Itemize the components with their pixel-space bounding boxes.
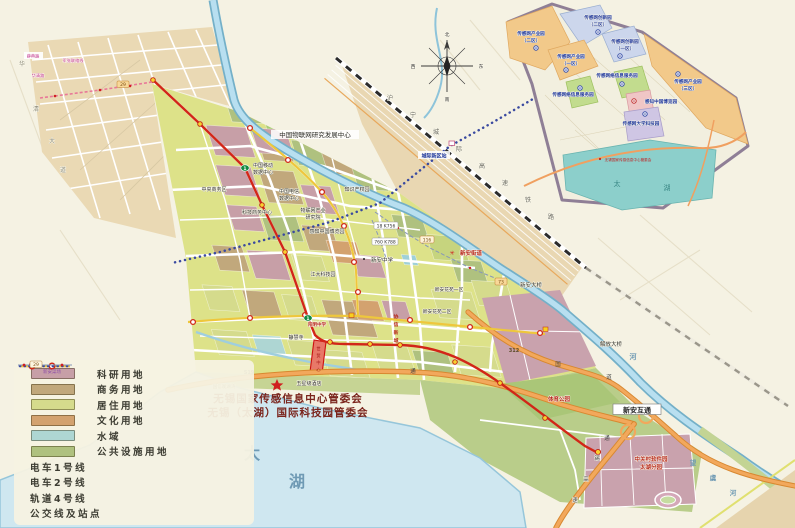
svg-text:湖: 湖 [664,183,671,192]
bus-sample-icon: 29 新安菜场 [16,360,74,374]
svg-text:贸: 贸 [316,352,320,359]
svg-text:城: 城 [433,129,439,136]
svg-text:速: 速 [502,179,508,187]
inset-hq-dot [599,158,601,160]
legend-label: 商务用地 [97,382,145,396]
legend-bus-badge: 29 [33,362,39,368]
compass-south: 南 [445,96,450,103]
label-pink-line-1: 薛典路 [27,53,40,60]
svg-text:（二区）: （二区） [589,21,607,28]
svg-text:传感网大学科技园: 传感网大学科技园 [622,120,660,127]
g312-badge: 312 [509,348,520,354]
svg-text:传感网产业园: 传感网产业园 [516,30,545,37]
svg-text:太: 太 [614,179,621,188]
svg-text:路: 路 [548,213,555,221]
legend-label: 轨道4号线 [30,491,87,505]
svg-text:中: 中 [316,359,320,366]
legend-label: 电车2号线 [30,475,87,489]
svg-text:（三区）: （三区） [679,85,697,92]
label-chengji-station: 城际新区站 [421,153,446,160]
swatch-public [31,446,75,457]
label-telecom-dc: 数据中心 [279,195,299,202]
compass-east: 东 [479,63,484,70]
label-mobile-dc: 中国移动 [253,162,273,169]
label-jiangda-park: 江大科技园 [310,271,335,278]
label-sports-park: 体育公园 [548,395,571,403]
label-tech-biz: 科技商务中心 [242,209,272,216]
legend-row: 文化用地 [22,413,254,428]
label-zhongguancun: 中关村软件园 [634,455,668,463]
svg-text:世: 世 [316,345,320,351]
svg-text:宁: 宁 [410,111,416,119]
river-label: 河 [630,352,637,361]
legend-label: 电车1号线 [30,460,87,474]
svg-text:沪: 沪 [387,94,393,102]
svg-text:信: 信 [394,321,399,328]
legend-row: 居住用地 [22,397,254,412]
svg-text:高: 高 [583,475,589,483]
tram1-badge-num: 1 [306,316,309,322]
svg-text:新: 新 [394,329,399,336]
label-iot-institute: 研究院 [305,214,320,221]
legend-label: 水域 [97,429,121,443]
bus-badge-18: 18 K756 [377,223,396,229]
svg-text:协: 协 [394,313,399,320]
svg-text:大: 大 [49,137,55,145]
svg-text:传感网创新园: 传感网创新园 [583,14,612,21]
svg-text:传感网络信息服务园: 传感网络信息服务园 [551,91,594,98]
legend-label: 公共设施用地 [97,444,169,458]
legend-row: 公共设施用地 [22,444,254,459]
compass-west: 西 [411,64,416,70]
svg-text:（二区）: （二区） [522,37,540,44]
label-pink-line-2: 军张联络线 [63,57,85,64]
legend-label: 居住用地 [97,398,145,412]
svg-text:河: 河 [730,488,737,497]
legend-row: 电车2号线 [22,475,254,490]
svg-text:城: 城 [394,337,399,344]
label-jinghui-temple: 静慧寺 [288,334,303,341]
swatch-water [31,430,75,441]
svg-text:铁: 铁 [525,196,531,204]
svg-text:道: 道 [60,166,66,174]
label-xinan-interchange: 新安互通 [623,406,652,415]
svg-text:华: 华 [19,60,25,68]
g312-dao: 道 [606,373,612,381]
bus-badge-760: 760 K788 [374,239,396,245]
label-hotel: 五星级酒店 [296,380,321,387]
legend-row: 水域 [22,428,254,443]
lake-label-hu: 湖 [289,472,305,491]
svg-text:（一区）: （一区） [616,45,634,52]
inset-hq-note: 无锡国家传感信息中心管委会 [605,157,652,162]
legend: 科研用地 商务用地 居住用地 文化用地 水域 公共设施用地 电车1号线 电车2号… [14,360,254,525]
label-pink-line-3: 华清路 [32,72,45,79]
bus-badge-29: 29 [120,82,126,88]
legend-label: 科研用地 [97,367,145,381]
s19-tong2: 通 [604,434,610,442]
legend-bus-stop-label: 新安菜场 [43,368,61,374]
compass-north: 北 [445,31,450,38]
svg-text:望: 望 [690,458,697,467]
legend-row: 轨道4号线 [22,490,254,505]
legend-label: 文化用地 [97,413,145,427]
label-huayuan-1: 新安花苑一区 [435,286,464,293]
label-jiefang-bridge: 解放大桥 [600,340,623,348]
bus-badge-73: 73 [498,279,504,285]
svg-text:锡: 锡 [594,454,600,462]
s19-tong: 通 [410,367,416,375]
svg-text:传感网产业园: 传感网产业园 [673,78,702,85]
svg-text:传感网创新园: 传感网创新园 [610,38,639,45]
planning-map: 1 1 北 南 东 西 18 K756 760 K788 [0,0,795,528]
rail4-station [449,141,455,146]
swatch-business [31,384,75,395]
svg-text:清: 清 [33,105,39,113]
label-xinan-school: 新安中学 [371,256,394,264]
poi-dot [363,258,365,260]
label-telecom-dc: 中国电信 [279,188,299,195]
svg-text:传感网络信息服务园: 传感网络信息服务园 [595,72,638,79]
stadium [655,492,681,508]
flower-marker-icon: ✳ [449,250,454,257]
label-ip-park: 知识产权园 [344,186,369,193]
svg-text:速: 速 [572,497,578,504]
svg-text:（一区）: （一区） [562,60,580,67]
swatch-culture [31,415,75,426]
label-zhongguancun: 太湖分园 [640,463,663,471]
legend-row: 商务用地 [22,382,254,397]
label-xinan-street: 新安街道 [460,249,483,257]
g312-guo: 国 [555,361,561,368]
legend-row: 电车1号线 [22,459,254,474]
label-iot-center: 中国物联网研究发展中心 [279,130,351,139]
svg-text:虞: 虞 [710,473,717,482]
legend-label: 公交线及站点 [30,506,102,520]
label-cbd: 中央商务区 [201,186,226,193]
label-xinan-bridge: 新安大桥 [520,281,543,289]
label-iot-institute: 物联网产业 [300,207,325,214]
label-huayuan-2: 新安花苑二区 [423,308,452,315]
tram1-badge-num: 1 [243,166,246,172]
swatch-residential [31,399,75,410]
svg-text:高: 高 [479,162,485,170]
bus-badge-116: 116 [423,237,432,243]
svg-text:际: 际 [456,145,462,153]
label-yangming-school: 阳明中学 [308,321,326,328]
svg-text:传感网产业园: 传感网产业园 [556,53,585,60]
label-mobile-dc: 数据中心 [253,169,273,176]
svg-text:感知中国博览园: 感知中国博览园 [645,98,678,105]
label-expo-park: 感知中国博览园 [309,228,344,235]
legend-row: 29 新安菜场 公交线及站点 [22,506,254,521]
